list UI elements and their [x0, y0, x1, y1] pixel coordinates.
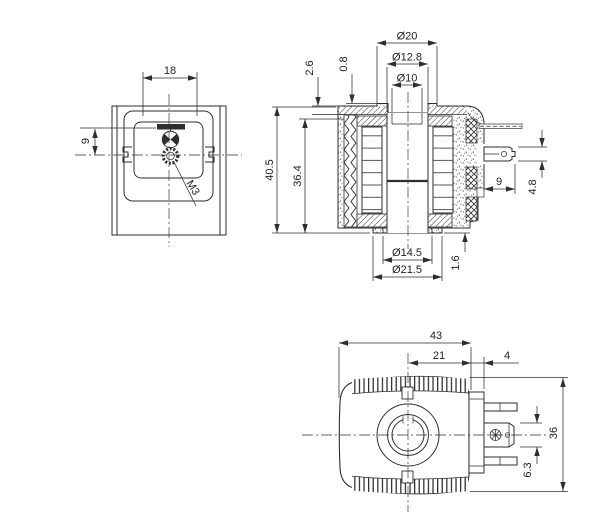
dim-label-connector-offset: 4 [504, 350, 510, 362]
dim-label-bottom-lip: 1.6 [450, 255, 462, 270]
terminal-bar [157, 124, 185, 130]
armature-bore [388, 113, 428, 233]
technical-drawing: 18 9 M3 [0, 0, 601, 525]
coil-winding-right [433, 127, 453, 213]
dim-label-top-step: 2.6 [304, 60, 316, 75]
dim-label-dia-outer: Ø20 [397, 31, 418, 43]
top-view: 43 21 4 36 6.3 [302, 330, 568, 512]
dim-label-thread: M3 [183, 178, 201, 197]
dim-label-front-width: 18 [164, 65, 176, 77]
dim-label-top-depth: 36 [548, 427, 560, 439]
blade-pin-bottom [484, 457, 517, 465]
dim-label-front-offset: 9 [80, 138, 92, 144]
dim-label-dia-bore: Ø10 [397, 73, 418, 85]
connector-plate [469, 392, 484, 473]
coil-winding-left [362, 127, 382, 213]
dim-label-dia-boss-outer: Ø21.5 [392, 264, 422, 276]
front-view: 18 9 M3 [75, 65, 242, 247]
dim-label-dia-mid: Ø12.8 [392, 52, 422, 64]
dim-label-terminal-height: 4.8 [527, 179, 539, 194]
drawing-canvas: 18 9 M3 [0, 0, 601, 525]
m3-thread-hole [163, 149, 178, 164]
dim-label-terminal-length: 9 [496, 176, 502, 188]
dim-label-height-total: 40.5 [264, 159, 276, 180]
dim-label-height-inner: 36.4 [292, 165, 304, 186]
dim-label-ground-terminal: 6.3 [522, 462, 534, 477]
section-view: Ø20 Ø12.8 Ø10 0.8 2.6 40.5 36.4 [264, 31, 547, 282]
frame-left-wall [344, 115, 357, 227]
dim-label-top-width: 43 [430, 330, 442, 342]
dim-label-top-lip: 0.8 [338, 56, 350, 71]
dim-label-center-to-edge: 21 [433, 350, 445, 362]
dim-label-dia-boss-inner: Ø14.5 [392, 247, 422, 259]
blade-pin-top [484, 403, 517, 411]
